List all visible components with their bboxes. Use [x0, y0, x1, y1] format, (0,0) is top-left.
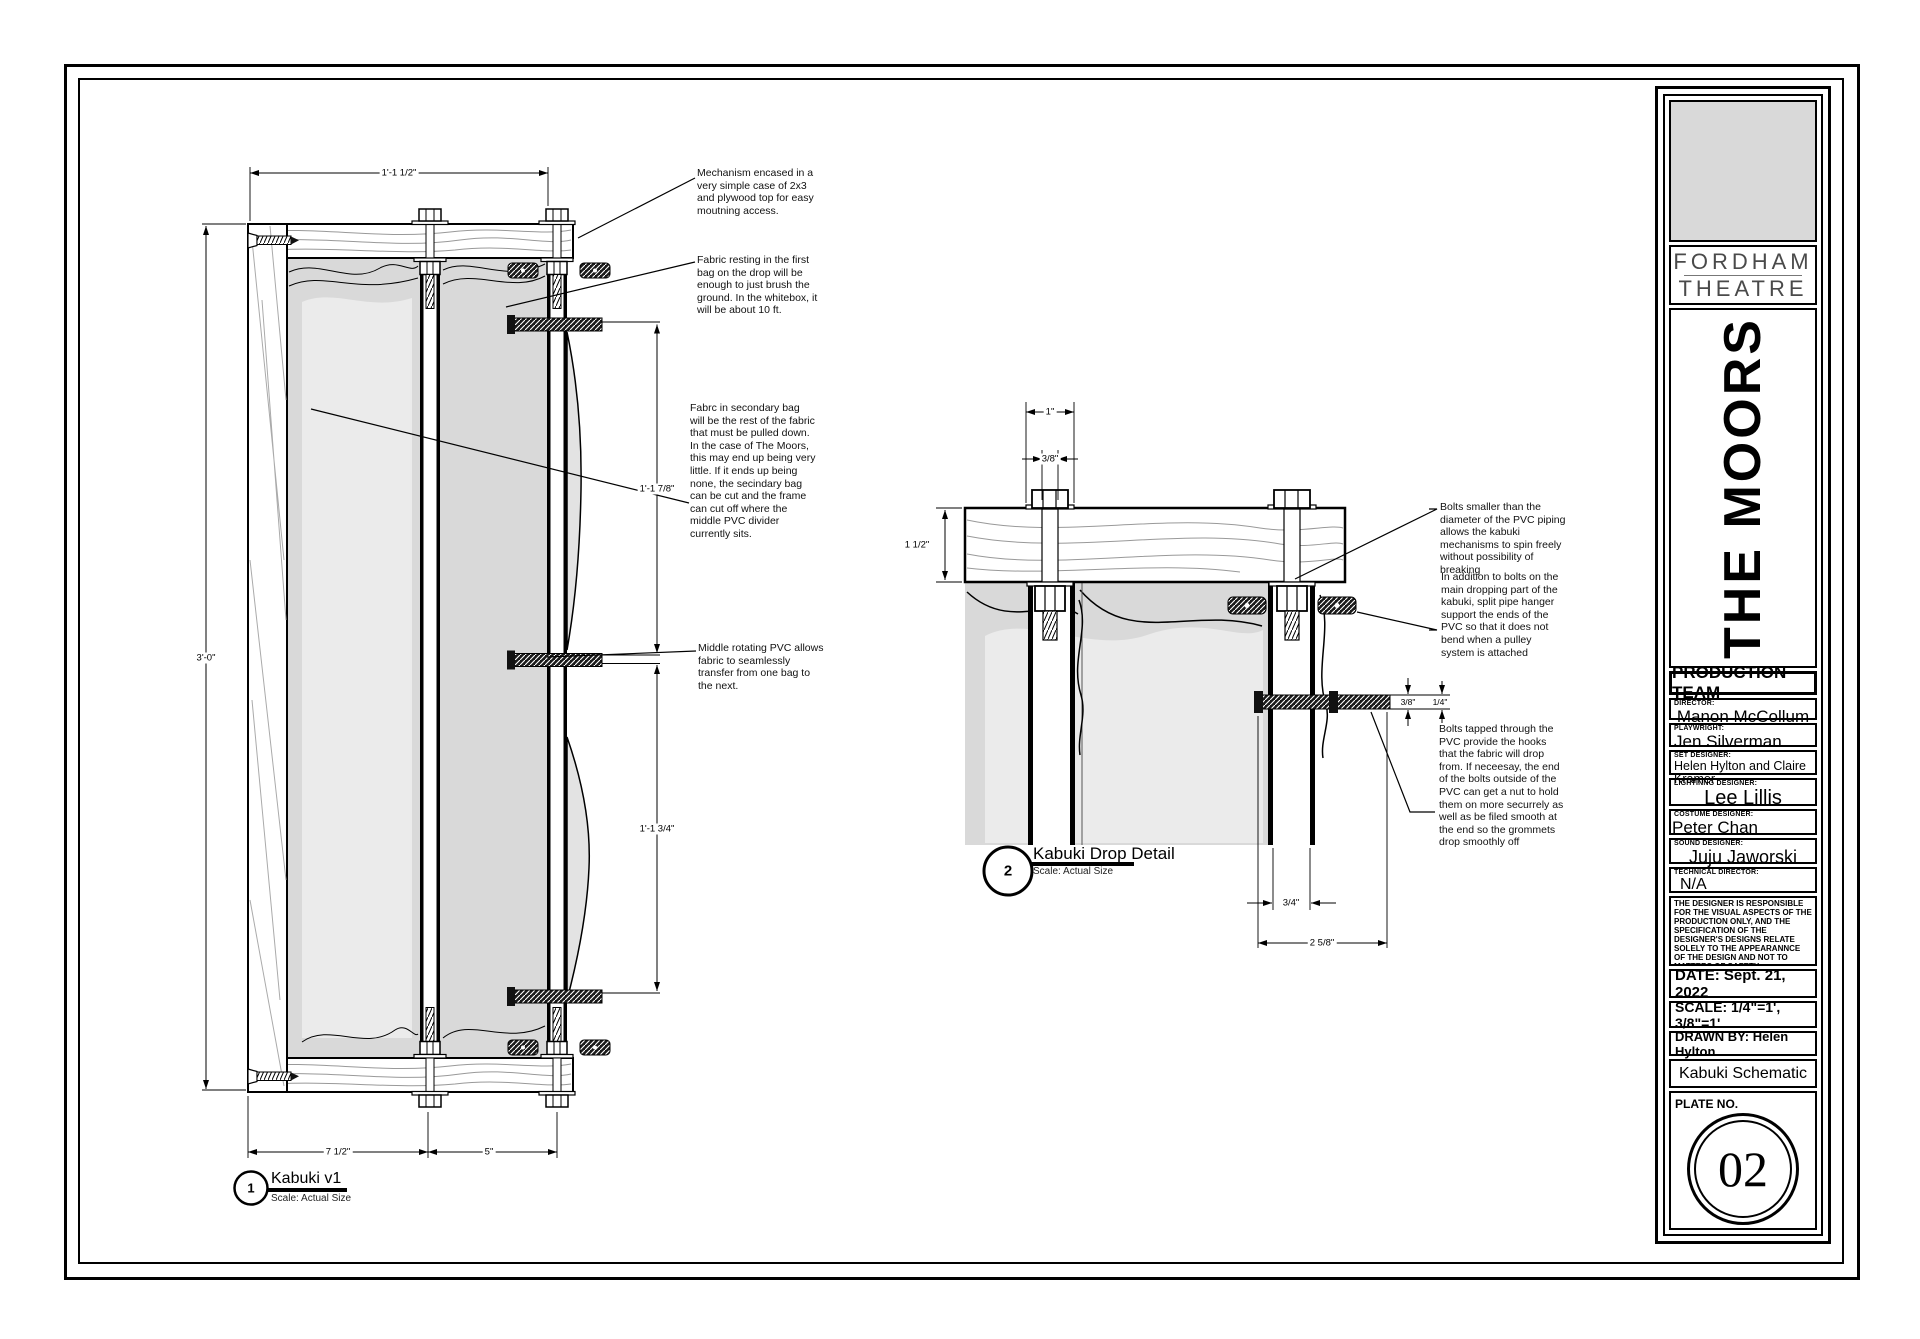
fordham-theatre-logo: FORDHAM THEATRE: [1669, 245, 1817, 305]
role-name: N/A: [1674, 877, 1812, 894]
role-name: Jen Silverman: [1674, 733, 1812, 751]
production-team-header: PRODUCTION TEAM: [1669, 671, 1817, 695]
plate-number: 02: [1718, 1140, 1768, 1198]
dim-crossbolt-lower: 1/4": [1431, 697, 1450, 707]
dim-lower-bag: 1'-1 3/4": [638, 824, 677, 835]
show-title: THE MOORS: [1713, 317, 1773, 659]
plate-number-circle: 02: [1687, 1113, 1799, 1225]
dim-pipe-gap: 3/4": [1281, 898, 1302, 909]
show-title-box: THE MOORS: [1669, 308, 1817, 668]
drawing1-title: Kabuki v1: [271, 1170, 341, 1188]
team-row-costume-designer: COSTUME DESIGNER: Peter Chan: [1669, 809, 1817, 835]
annotation-pipe-hanger: In addition to bolts on the main droppin…: [1441, 571, 1558, 659]
dim-crossbolt-upper: 3/8": [1399, 697, 1418, 707]
dim-bottom-left: 7 1/2": [324, 1147, 353, 1158]
dim-head-width: 1": [1044, 407, 1057, 418]
dim-width-overall: 1'-1 1/2": [380, 168, 419, 179]
kabuki-v1-drawing: [202, 167, 696, 1205]
plate-label: PLATE NO.: [1675, 1097, 1738, 1111]
role-name: Peter Chan: [1672, 819, 1812, 837]
drawing2-scale-note: Scale: Actual Size: [1033, 866, 1113, 877]
logo-line-2: THEATRE: [1678, 277, 1807, 300]
dim-upper-bag: 1'-1 7/8": [638, 484, 677, 495]
dim-bottom-right: 5": [483, 1147, 496, 1158]
dim-wood-thickness: 1 1/2": [903, 540, 932, 551]
drawn-by-field: DRAWN BY: Helen Hylton: [1669, 1031, 1817, 1056]
dim-overall-detail: 2 5/8": [1308, 938, 1337, 949]
sheet-title: Kabuki Schematic: [1669, 1059, 1817, 1088]
logo-line-1: FORDHAM: [1673, 250, 1812, 273]
role-name: Lee Lillis: [1674, 788, 1812, 809]
team-row-sound-designer: SOUND DESIGNER: Juju Jaworski: [1669, 838, 1817, 864]
annotation-middle-pvc: Middle rotating PVC allows fabric to sea…: [698, 642, 823, 692]
schematic-linework: [0, 0, 1920, 1339]
team-row-playwright: PLAYWRIGHT: Jen Silverman: [1669, 723, 1817, 747]
drawing2-title: Kabuki Drop Detail: [1033, 844, 1175, 864]
annotation-tapped-bolts: Bolts tapped through the PVC provide the…: [1439, 723, 1563, 849]
team-row-director: DIRECTOR: Manon McCollum: [1669, 698, 1817, 720]
title-block: FORDHAM THEATRE THE MOORS PRODUCTION TEA…: [1655, 86, 1831, 1244]
kabuki-drop-detail-drawing: [936, 402, 1450, 948]
safety-disclaimer: THE DESIGNER IS RESPONSIBLE FOR THE VISU…: [1669, 896, 1817, 966]
team-row-technical-director: TECHNICAL DIRECTOR: N/A: [1669, 867, 1817, 893]
drawing1-scale-note: Scale: Actual Size: [271, 1193, 351, 1204]
scale-field: SCALE: 1/4"=1', 3/8"=1': [1669, 1001, 1817, 1028]
title-block-image-placeholder: [1669, 100, 1817, 242]
role-name: Juju Jaworski: [1674, 848, 1812, 867]
plate-number-box: PLATE NO. 02: [1669, 1091, 1817, 1230]
team-row-set-designer: SET DESIGNER: Helen Hylton and Claire Kr…: [1669, 750, 1817, 775]
annotation-smaller-bolts: Bolts smaller than the diameter of the P…: [1440, 501, 1566, 577]
team-row-lighting-designer: LIGHTINNG DESIGNER: Lee Lillis: [1669, 778, 1817, 806]
date-field: DATE: Sept. 21, 2022: [1669, 969, 1817, 998]
callout-number-1: 1: [247, 1181, 254, 1196]
annotation-first-bag: Fabric resting in the first bag on the d…: [697, 254, 817, 317]
annotation-secondary-bag: Fabrc in secondary bag will be the rest …: [690, 402, 816, 541]
annotation-mechanism-case: Mechanism encased in a very simple case …: [697, 167, 814, 217]
dim-bolt-width: 3/8": [1040, 454, 1061, 465]
callout-number-2: 2: [1004, 863, 1012, 880]
dim-height-overall: 3'-0": [195, 653, 218, 664]
